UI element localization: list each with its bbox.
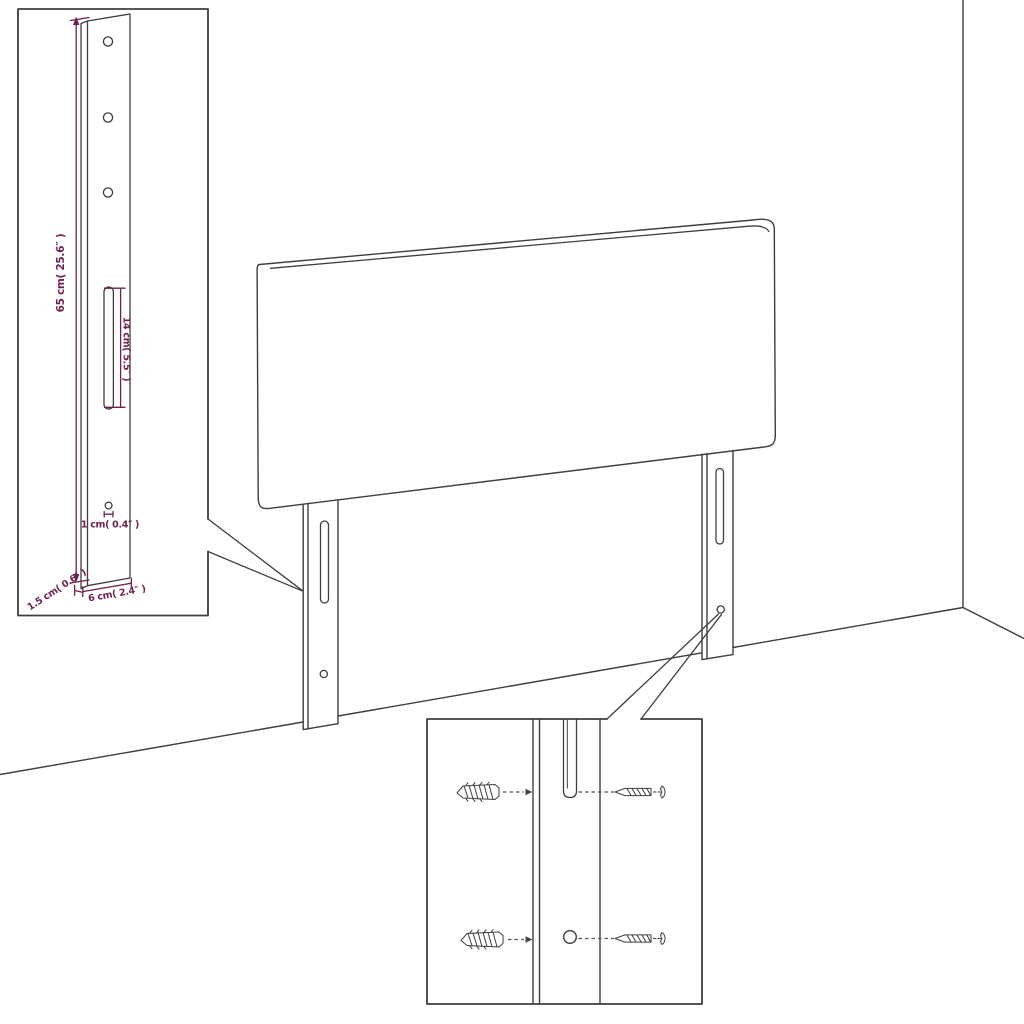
headboard-left-leg xyxy=(303,500,338,730)
leg-hole-top xyxy=(103,37,112,46)
strip-hole xyxy=(564,931,577,944)
hardware-row-bottom xyxy=(461,930,665,949)
left-leg-slot xyxy=(321,521,329,603)
headboard-panel xyxy=(257,219,775,508)
leg-hole-middle xyxy=(103,113,112,122)
leg-detail-callout xyxy=(208,519,302,591)
headboard-right-leg xyxy=(702,450,733,659)
strip-slot xyxy=(564,719,577,798)
leg-small-hole xyxy=(105,502,112,509)
right-leg-slot xyxy=(716,469,724,545)
hole-diameter-dimension-label: 1 cm( 0.4″ ) xyxy=(81,520,139,531)
slot-height-dimension-label: 14 cm( 5.5″ ) xyxy=(121,317,132,382)
mounting-strip xyxy=(533,719,600,1004)
leg-detail-drawing xyxy=(81,14,130,589)
dimension-lines xyxy=(71,17,132,597)
left-leg-hole xyxy=(320,670,327,677)
hardware-detail-inset xyxy=(427,614,722,1004)
leg-hole-lower xyxy=(103,188,112,197)
hardware-row-top xyxy=(457,782,665,801)
right-leg-hole xyxy=(717,606,724,613)
leg-slot xyxy=(104,287,113,409)
room-corner-lines xyxy=(0,0,1024,775)
headboard-assembly-diagram xyxy=(0,0,1024,1024)
hardware-detail-box xyxy=(427,719,702,1004)
height-dimension-label: 65 cm( 25.6″ ) xyxy=(55,234,67,313)
diagram-canvas: 65 cm( 25.6″ ) 14 cm( 5.5″ ) 1 cm( 0.4″ … xyxy=(0,0,1024,1024)
